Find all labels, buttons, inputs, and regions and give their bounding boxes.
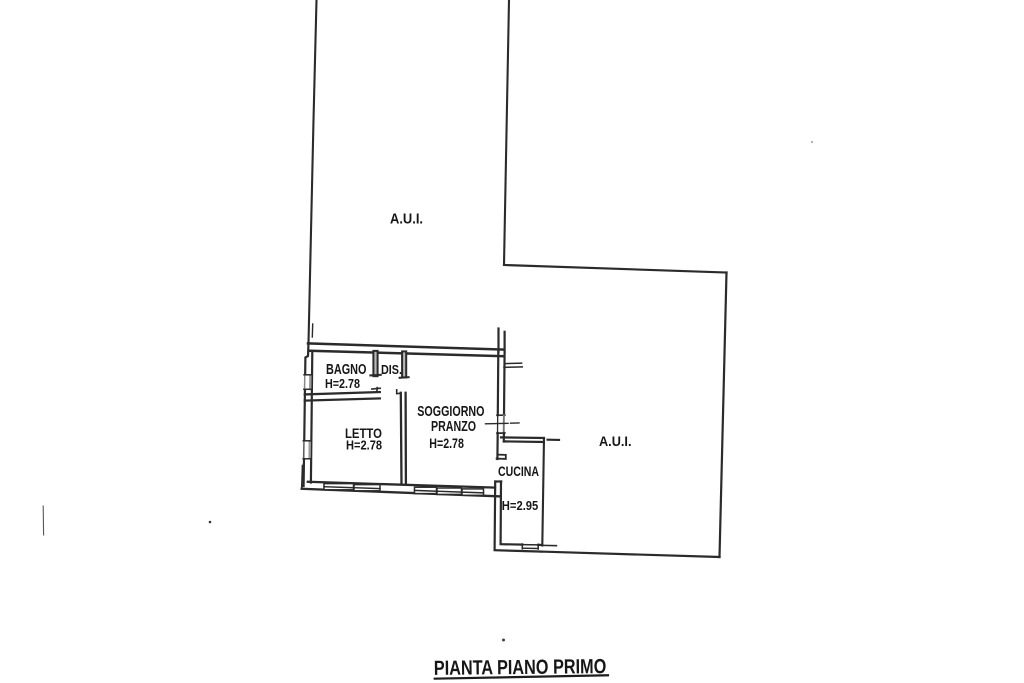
svg-text:H=2.78: H=2.78 — [325, 376, 360, 391]
svg-text:H=2.78: H=2.78 — [429, 435, 464, 451]
svg-text:H=2.78: H=2.78 — [346, 439, 382, 453]
svg-text:PRANZO: PRANZO — [431, 419, 476, 435]
svg-text:DIS.: DIS. — [381, 363, 402, 377]
svg-text:A.U.I.: A.U.I. — [599, 433, 632, 449]
svg-text:H=2.95: H=2.95 — [502, 498, 539, 513]
svg-text:A.U.I.: A.U.I. — [390, 212, 423, 228]
svg-text:CUCINA: CUCINA — [498, 464, 539, 479]
svg-text:SOGGIORNO: SOGGIORNO — [417, 403, 484, 420]
